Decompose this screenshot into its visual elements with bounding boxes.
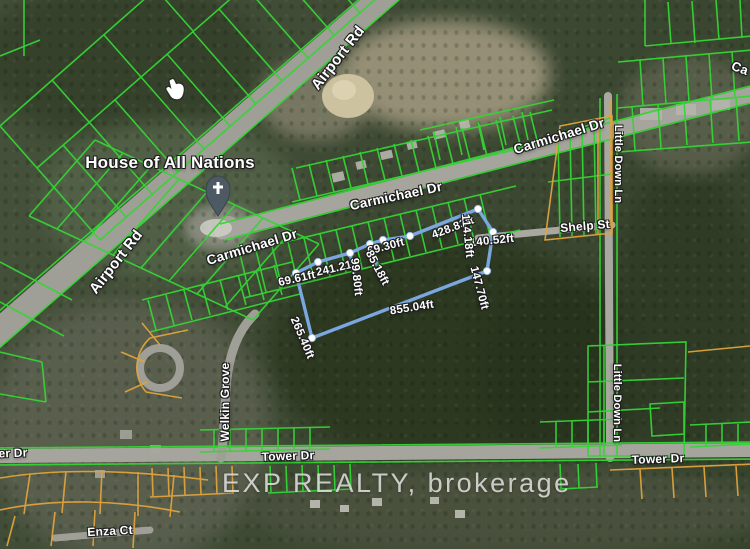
map-canvas[interactable]: Airport Rd Airport Rd House of All Natio… — [0, 0, 750, 549]
road-label-tower-dr-partial: er Dr — [0, 445, 28, 460]
mouse-cursor-icon — [163, 76, 191, 106]
road-label-tower-dr: Tower Dr — [261, 448, 314, 464]
poi-label-house-of-all-nations: House of All Nations — [85, 153, 255, 173]
road-label-little-down-ln: Little Down Ln — [611, 364, 623, 443]
road-label-little-down-ln: Little Down Ln — [612, 125, 624, 204]
brokerage-watermark: EXP REALTY, brokerage — [222, 468, 572, 499]
road-label-welkin-grove: Welkin Grove — [218, 363, 232, 442]
road-label-tower-dr: Tower Dr — [631, 451, 684, 467]
church-pin-icon[interactable] — [206, 176, 230, 216]
road-label-enza-ct: Enza Ct — [87, 523, 133, 539]
